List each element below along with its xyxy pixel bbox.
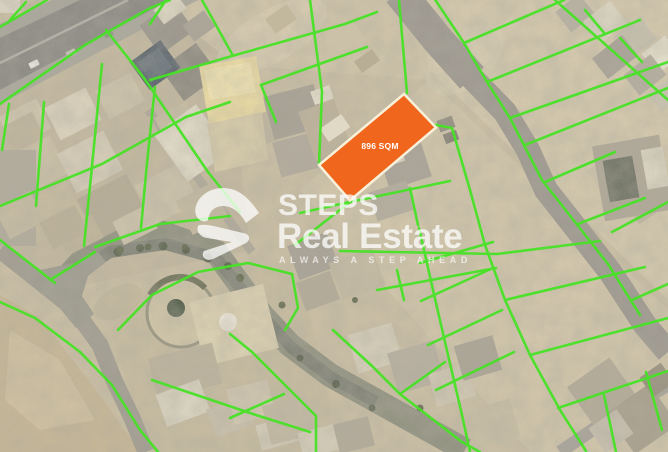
- svg-text:Real Estate: Real Estate: [277, 217, 462, 256]
- svg-text:896 SQM: 896 SQM: [361, 141, 398, 151]
- svg-text:ALWAYS A STEP AHEAD: ALWAYS A STEP AHEAD: [279, 255, 472, 265]
